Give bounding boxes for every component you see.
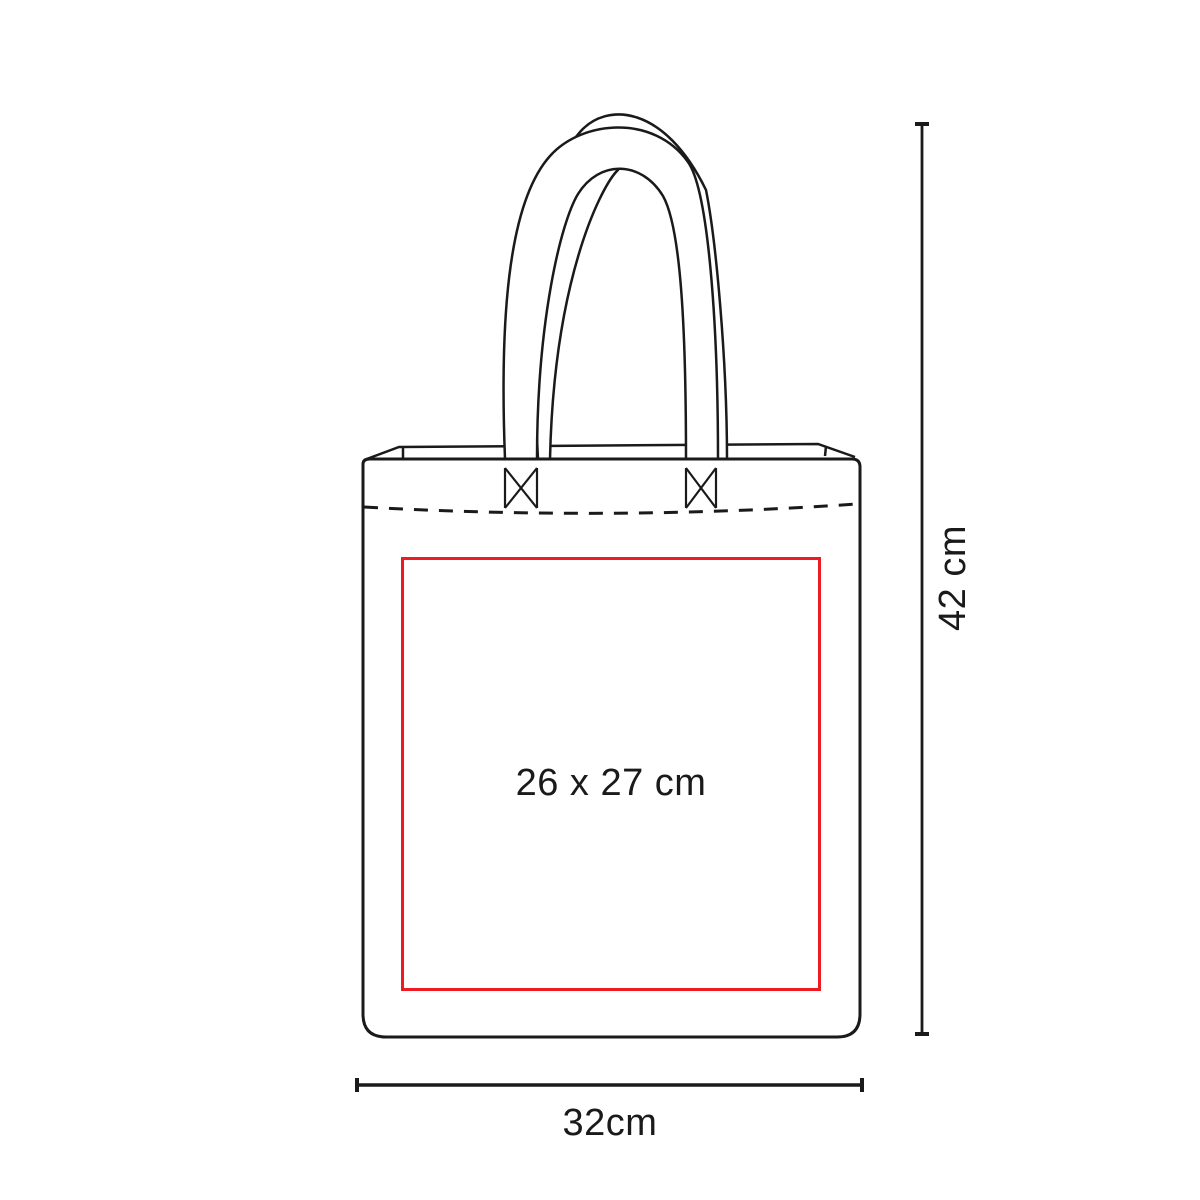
- bag-opening-right-gusset-tick: [825, 446, 826, 456]
- bag-line-art: [357, 114, 929, 1092]
- diagram-canvas: 26 x 27 cm 42 cm 32cm: [0, 0, 1200, 1200]
- height-dimension-label: 42 cm: [932, 525, 974, 631]
- hem-stitch-dashed-line: [364, 504, 857, 513]
- print-area-label: 26 x 27 cm: [516, 762, 707, 804]
- tote-bag-dimension-diagram: 26 x 27 cm 42 cm 32cm: [0, 0, 1200, 1200]
- right-stitch-box: [686, 468, 716, 508]
- bag-outline: [363, 459, 860, 1037]
- height-dimension: [915, 123, 929, 1035]
- left-stitch-box: [505, 468, 537, 508]
- width-dimension: [357, 1078, 862, 1092]
- width-dimension-label: 32cm: [563, 1102, 658, 1144]
